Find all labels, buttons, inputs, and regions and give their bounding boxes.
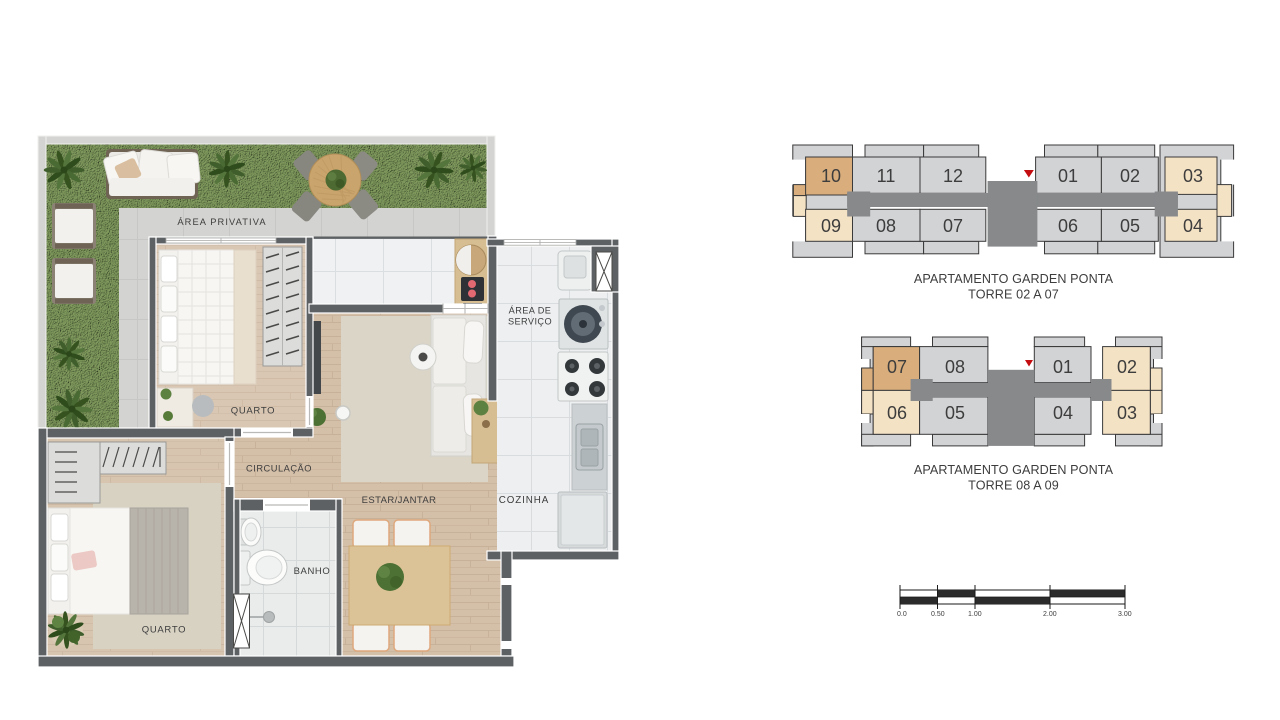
svg-text:06: 06: [1058, 216, 1078, 236]
svg-text:03: 03: [1117, 403, 1137, 423]
svg-text:02: 02: [1117, 357, 1137, 377]
svg-text:1.00: 1.00: [968, 611, 982, 618]
svg-text:APARTAMENTO GARDEN PONTA: APARTAMENTO GARDEN PONTA: [914, 272, 1114, 286]
svg-text:06: 06: [887, 403, 907, 423]
svg-text:08: 08: [876, 216, 896, 236]
svg-text:CIRCULAÇÃO: CIRCULAÇÃO: [246, 464, 312, 474]
svg-text:ÁREA PRIVATIVA: ÁREA PRIVATIVA: [177, 217, 266, 227]
svg-text:01: 01: [1053, 357, 1073, 377]
svg-text:ESTAR/JANTAR: ESTAR/JANTAR: [362, 495, 437, 506]
svg-text:05: 05: [945, 403, 965, 423]
svg-text:01: 01: [1058, 166, 1078, 186]
svg-text:10: 10: [821, 166, 841, 186]
svg-text:07: 07: [943, 216, 963, 236]
svg-text:QUARTO: QUARTO: [142, 625, 187, 636]
svg-text:3.00: 3.00: [1118, 611, 1132, 618]
svg-text:08: 08: [945, 357, 965, 377]
svg-text:05: 05: [1120, 216, 1140, 236]
svg-text:04: 04: [1053, 403, 1073, 423]
svg-text:12: 12: [943, 166, 963, 186]
svg-text:TORRE 02 A 07: TORRE 02 A 07: [968, 288, 1059, 302]
svg-text:TORRE 08 A 09: TORRE 08 A 09: [968, 479, 1059, 493]
svg-text:04: 04: [1183, 216, 1203, 236]
svg-text:09: 09: [821, 216, 841, 236]
svg-text:ÁREA DE: ÁREA DE: [509, 306, 552, 316]
svg-text:11: 11: [877, 166, 896, 186]
svg-text:0.50: 0.50: [931, 611, 945, 618]
svg-text:COZINHA: COZINHA: [499, 495, 549, 506]
svg-text:QUARTO: QUARTO: [231, 406, 276, 417]
svg-text:BANHO: BANHO: [294, 566, 331, 577]
svg-text:2.00: 2.00: [1043, 611, 1057, 618]
svg-text:SERVIÇO: SERVIÇO: [508, 317, 552, 327]
svg-text:0.0: 0.0: [897, 611, 907, 618]
svg-text:03: 03: [1183, 166, 1203, 186]
svg-text:02: 02: [1120, 166, 1140, 186]
svg-text:07: 07: [887, 357, 907, 377]
svg-text:APARTAMENTO GARDEN PONTA: APARTAMENTO GARDEN PONTA: [914, 463, 1114, 477]
